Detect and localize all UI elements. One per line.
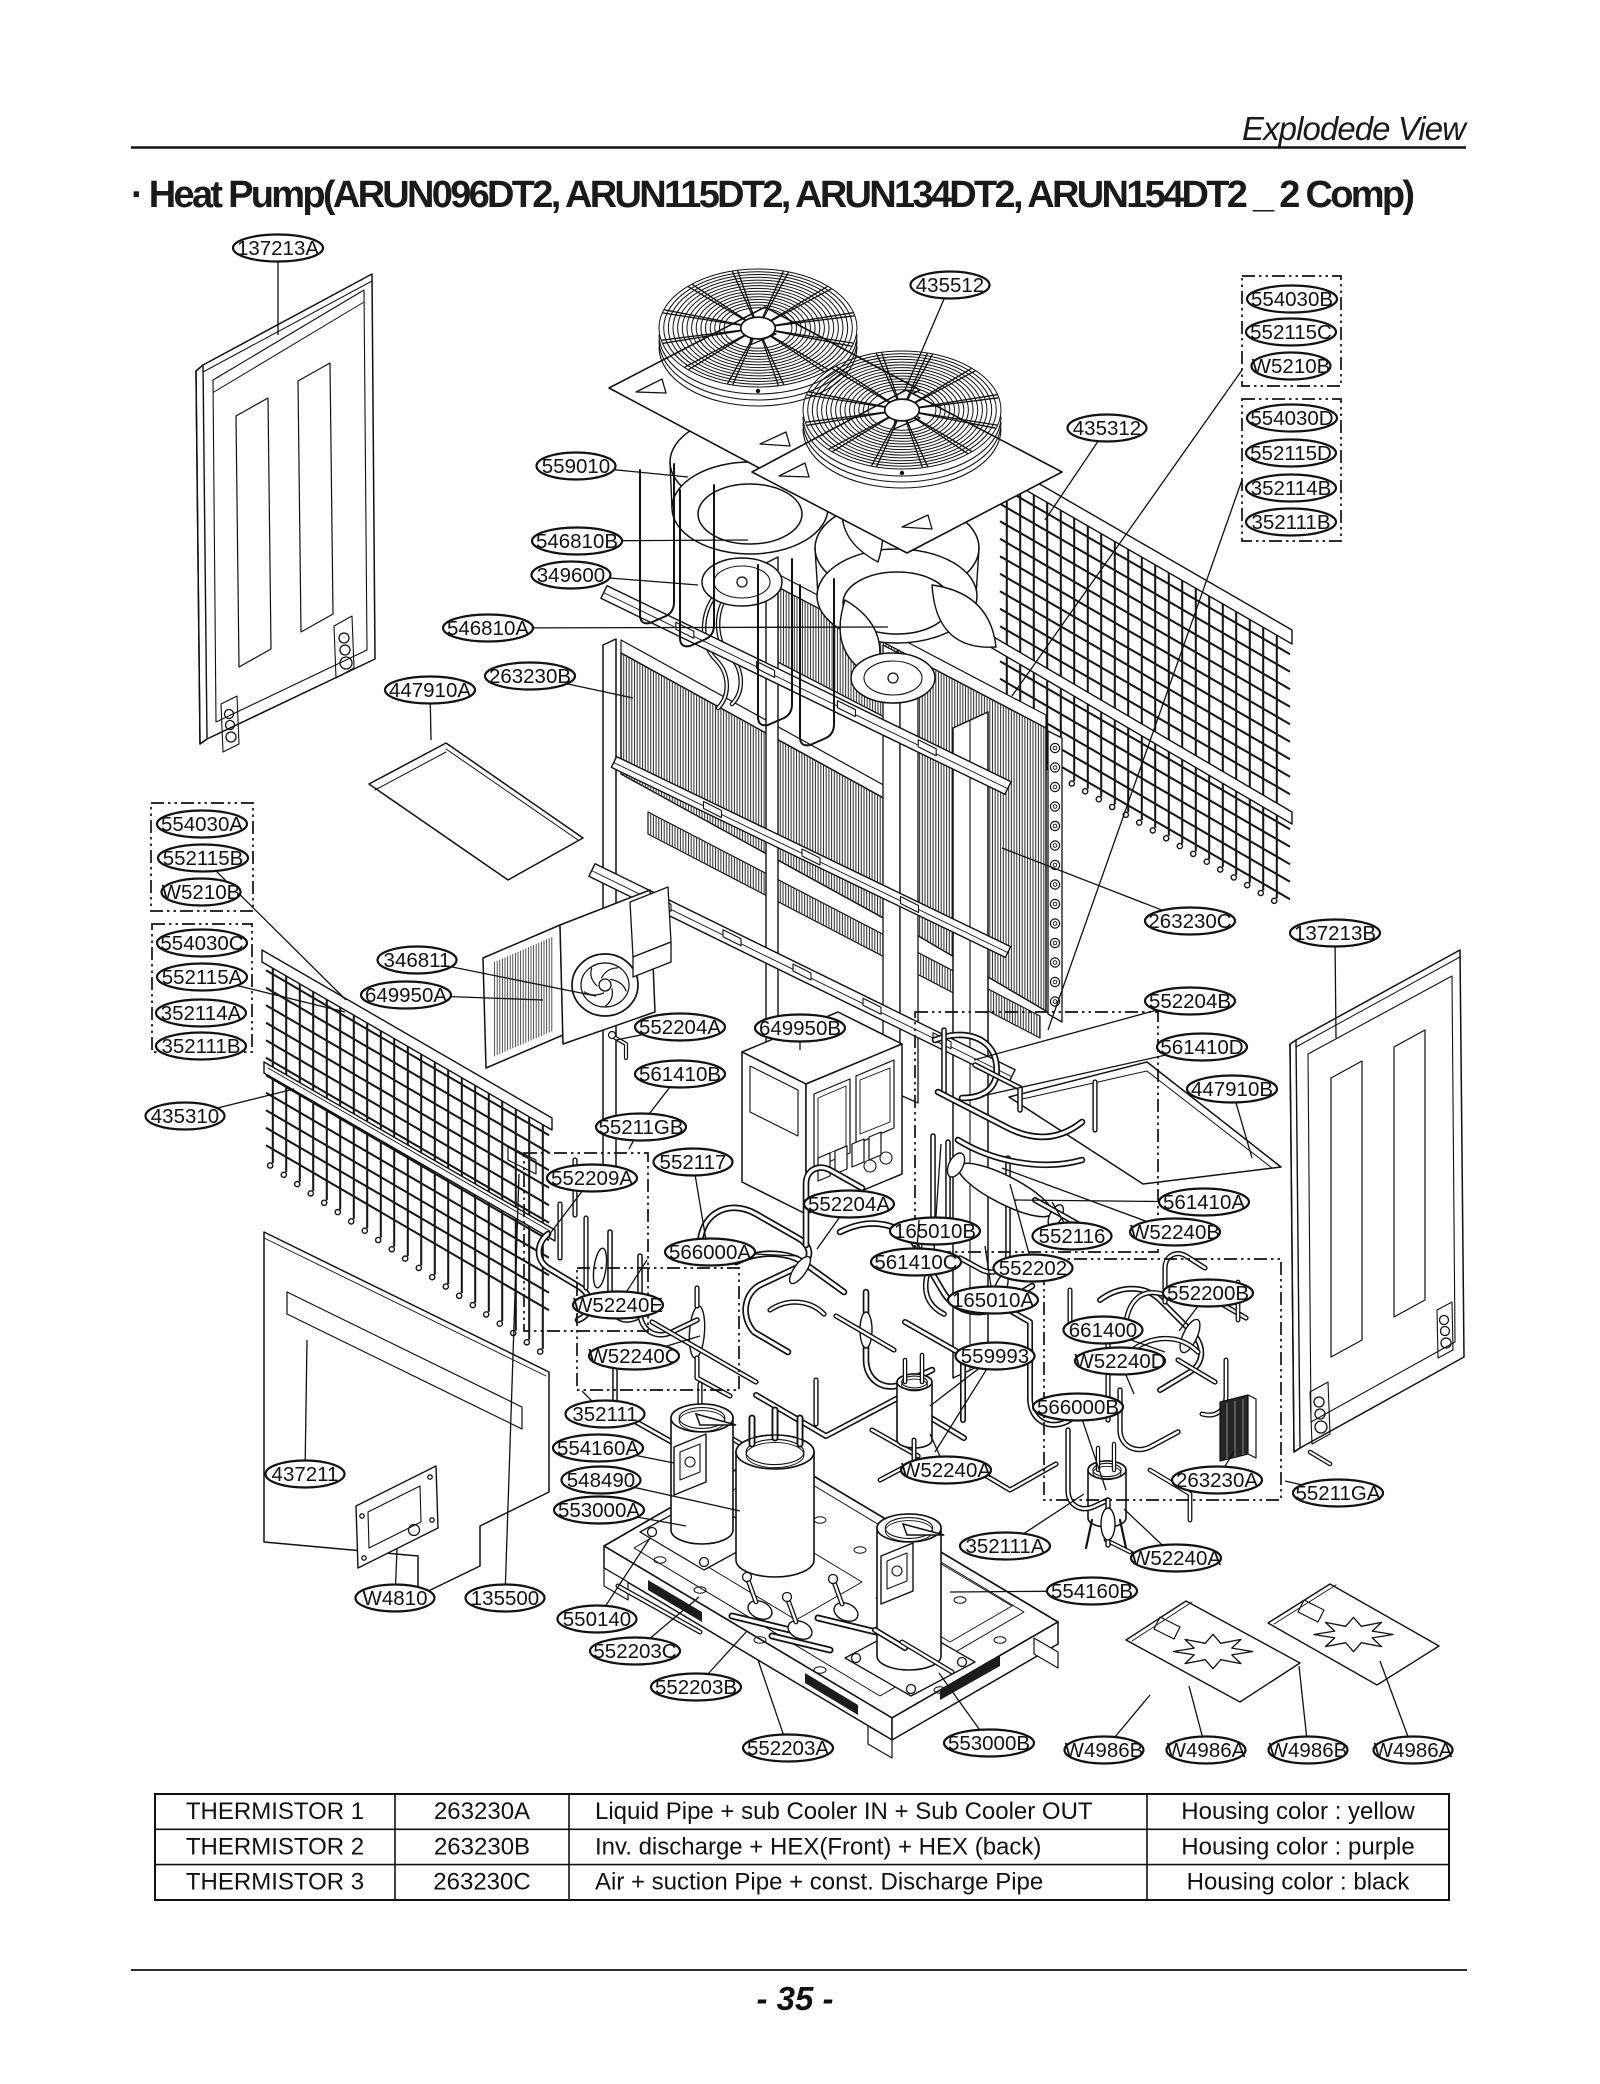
svg-text:352111B: 352111B [1251,511,1330,534]
svg-text:165010B: 165010B [894,1220,976,1243]
svg-text:55211GB: 55211GB [598,1116,683,1139]
svg-text:W4810: W4810 [363,1587,428,1610]
svg-text:552209A: 552209A [551,1167,633,1190]
svg-text:552115A: 552115A [162,966,243,989]
svg-text:435310: 435310 [151,1105,219,1128]
svg-text:552115C: 552115C [1250,321,1332,344]
svg-text:135500: 135500 [471,1587,539,1610]
svg-text:546810B: 546810B [536,530,618,553]
svg-text:263230B: 263230B [489,665,571,688]
svg-text:Housing color : yellow: Housing color : yellow [1181,1798,1415,1825]
svg-text:Liquid Pipe + sub Cooler IN +: Liquid Pipe + sub Cooler IN + Sub Cooler… [595,1798,1093,1825]
svg-text:346811: 346811 [384,949,451,972]
svg-text:554030C: 554030C [160,932,243,955]
svg-text:553000B: 553000B [948,1732,1030,1755]
svg-text:435312: 435312 [1073,417,1141,440]
svg-text:550140: 550140 [563,1608,631,1631]
svg-text:554030A: 554030A [161,813,243,836]
svg-text:559010: 559010 [542,455,610,478]
svg-text:W52240A: W52240A [901,1459,991,1482]
svg-text:263230C: 263230C [1148,910,1231,933]
svg-text:649950B: 649950B [759,1017,841,1040]
svg-text:447910A: 447910A [389,679,471,702]
svg-text:561410B: 561410B [639,1063,721,1086]
svg-text:Inv. discharge + HEX(Front) +: Inv. discharge + HEX(Front) + HEX (back) [595,1833,1041,1860]
svg-text:THERMISTOR 1: THERMISTOR 1 [186,1798,364,1825]
svg-text:W5210B: W5210B [162,881,241,904]
svg-text:552116: 552116 [1039,1225,1106,1248]
svg-text:W52240B: W52240B [1130,1221,1220,1244]
svg-text:649950A: 649950A [365,984,447,1007]
svg-text:137213A: 137213A [237,237,319,260]
svg-text:W4986A: W4986A [1167,1739,1246,1762]
svg-text:W52240C: W52240C [588,1345,679,1368]
svg-text:552203B: 552203B [655,1676,737,1699]
svg-text:552203C: 552203C [593,1640,676,1663]
svg-text:552202: 552202 [999,1257,1067,1280]
svg-text:352114B: 352114B [1251,477,1332,500]
svg-text:THERMISTOR 2: THERMISTOR 2 [186,1833,364,1860]
svg-text:352111: 352111 [572,1403,637,1426]
svg-text:566000B: 566000B [1037,1396,1119,1419]
svg-text:W52240E: W52240E [573,1294,663,1317]
svg-text:553000A: 553000A [558,1499,640,1522]
svg-text:W52240D: W52240D [1074,1350,1165,1373]
svg-text:· Heat Pump(ARUN096DT2, ARUN11: · Heat Pump(ARUN096DT2, ARUN115DT2, ARUN… [131,174,1415,216]
svg-text:Housing color : black: Housing color : black [1187,1869,1411,1896]
svg-text:Air + suction Pipe + const. Di: Air + suction Pipe + const. Discharge Pi… [595,1869,1043,1896]
svg-text:546810A: 546810A [447,617,529,640]
svg-text:552117: 552117 [660,1151,727,1174]
svg-text:352111B: 352111B [161,1035,240,1058]
svg-text:263230B: 263230B [434,1833,530,1860]
svg-text:561410C: 561410C [874,1251,957,1274]
svg-text:352114A: 352114A [161,1002,242,1025]
svg-text:165010A: 165010A [952,1289,1034,1312]
svg-text:552115D: 552115D [1250,442,1332,465]
svg-text:566000A: 566000A [669,1241,751,1264]
svg-text:137213B: 137213B [1294,922,1376,945]
svg-text:561410A: 561410A [1163,1191,1245,1214]
svg-text:W52240A: W52240A [1131,1547,1221,1570]
svg-text:- 35 -: - 35 - [756,1980,833,2017]
svg-text:552204A: 552204A [808,1193,890,1216]
svg-text:Housing color : purple: Housing color : purple [1181,1833,1414,1860]
svg-text:552204A: 552204A [639,1016,721,1039]
svg-text:554160B: 554160B [1051,1580,1133,1603]
svg-text:552204B: 552204B [1149,990,1231,1013]
svg-text:447910B: 447910B [1191,1078,1273,1101]
svg-text:W4986B: W4986B [1065,1739,1144,1762]
svg-text:435512: 435512 [916,274,984,297]
svg-text:552200B: 552200B [1167,1282,1249,1305]
svg-text:W4986B: W4986B [1269,1739,1348,1762]
svg-text:552203A: 552203A [747,1737,829,1760]
svg-text:561410D: 561410D [1160,1036,1243,1059]
svg-text:263230C: 263230C [433,1869,530,1896]
svg-text:552115B: 552115B [163,847,244,870]
svg-text:Explodede View: Explodede View [1242,110,1468,147]
svg-text:349600: 349600 [537,564,605,587]
svg-text:263230A: 263230A [1176,1469,1258,1492]
svg-text:55211GA: 55211GA [1295,1482,1380,1505]
svg-text:437211: 437211 [272,1463,339,1486]
svg-text:661400: 661400 [1069,1319,1137,1342]
svg-text:554030B: 554030B [1251,288,1333,311]
svg-text:W5210B: W5210B [1252,355,1331,378]
svg-text:559993: 559993 [961,1345,1029,1368]
svg-text:554030D: 554030D [1250,407,1333,430]
svg-text:W4986A: W4986A [1374,1739,1453,1762]
svg-text:352111A: 352111A [965,1535,1044,1558]
svg-text:554160A: 554160A [557,1437,639,1460]
svg-text:263230A: 263230A [434,1798,530,1825]
svg-text:548490: 548490 [567,1469,635,1492]
svg-text:THERMISTOR 3: THERMISTOR 3 [186,1869,364,1896]
